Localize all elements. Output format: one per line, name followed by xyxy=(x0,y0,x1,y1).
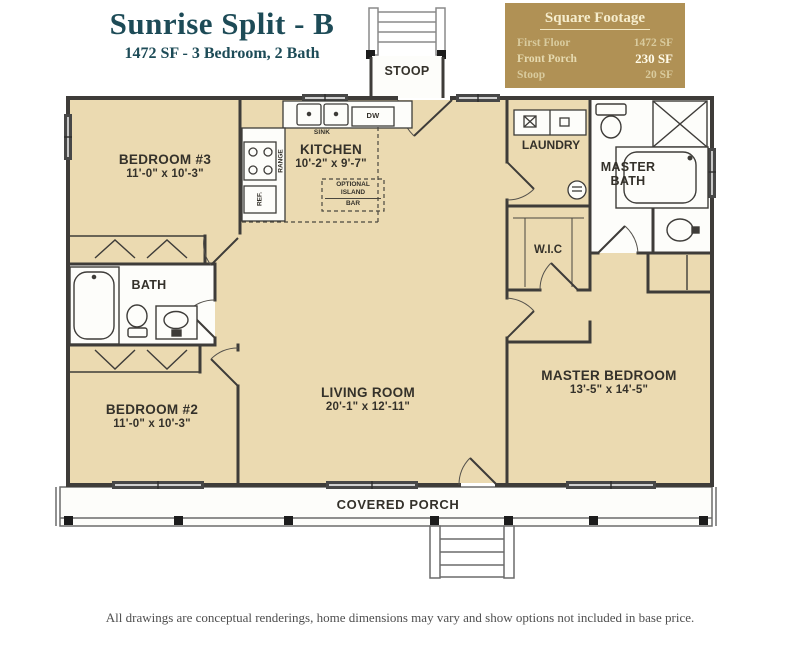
island-line2: ISLAND xyxy=(325,189,381,197)
stoop-label: STOOP xyxy=(384,64,429,78)
stoop-steps xyxy=(369,8,445,55)
ref-label: REF. xyxy=(257,192,264,206)
floor-plan-drawing xyxy=(0,0,800,652)
master-bath-label: MASTER BATH xyxy=(586,160,670,188)
bedroom2-dims: 11'-0" x 10'-3" xyxy=(106,417,198,431)
floor-plan-page: Sunrise Split - B 1472 SF - 3 Bedroom, 2… xyxy=(0,0,800,652)
kitchen-name: KITCHEN xyxy=(295,142,367,157)
kitchen-dims: 10'-2" x 9'-7" xyxy=(295,157,367,171)
kitchen-label: KITCHEN 10'-2" x 9'-7" xyxy=(295,142,367,171)
master-bedroom-label: MASTER BEDROOM 13'-5" x 14'-5" xyxy=(541,368,676,397)
optional-island-label: OPTIONAL ISLAND BAR xyxy=(325,181,381,208)
island-line3: BAR xyxy=(325,198,381,208)
bedroom3-dims: 11'-0" x 10'-3" xyxy=(119,167,211,181)
living-room-dims: 20'-1" x 12'-11" xyxy=(321,400,415,414)
living-room-name: LIVING ROOM xyxy=(321,385,415,400)
island-line1: OPTIONAL xyxy=(325,181,381,189)
disclaimer-text: All drawings are conceptual renderings, … xyxy=(0,610,800,626)
covered-porch-label: COVERED PORCH xyxy=(337,497,460,512)
master-bedroom-name: MASTER BEDROOM xyxy=(541,368,676,383)
bedroom3-label: BEDROOM #3 11'-0" x 10'-3" xyxy=(119,152,211,181)
bath-label: BATH xyxy=(132,278,167,292)
master-bedroom-dims: 13'-5" x 14'-5" xyxy=(541,383,676,397)
bedroom2-name: BEDROOM #2 xyxy=(106,402,198,417)
wic-label: W.I.C xyxy=(534,244,562,256)
sink-label: SINK xyxy=(314,129,330,136)
dw-label: DW xyxy=(367,111,380,120)
living-room-label: LIVING ROOM 20'-1" x 12'-11" xyxy=(321,385,415,414)
range-label: RANGE xyxy=(278,149,285,172)
laundry-label: LAUNDRY xyxy=(522,138,580,152)
porch-steps xyxy=(430,526,514,578)
bedroom2-label: BEDROOM #2 11'-0" x 10'-3" xyxy=(106,402,198,431)
bedroom3-name: BEDROOM #3 xyxy=(119,152,211,167)
